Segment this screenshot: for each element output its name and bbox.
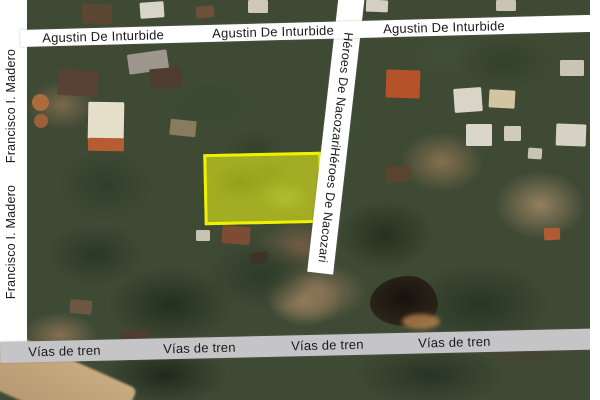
building-roof: [544, 228, 561, 241]
pond-bank: [402, 314, 440, 329]
street-label-agustin-2: Agustin De Inturbide: [212, 22, 334, 42]
building-roof: [249, 251, 268, 265]
building-roof: [496, 0, 516, 11]
building-roof: [386, 69, 421, 98]
building-roof: [366, 0, 388, 12]
street-label-madero-1: Francisco I. Madero: [1, 46, 21, 166]
building-roof: [560, 60, 584, 76]
building-roof: [69, 299, 92, 315]
street-label-vias-1: Vías de tren: [28, 340, 101, 363]
building-roof: [81, 3, 112, 25]
building-roof: [453, 87, 483, 113]
building-roof: [57, 69, 99, 98]
building-roof: [169, 119, 197, 138]
building-roof: [195, 5, 214, 19]
street-label-agustin-3: Agustin De Inturbide: [383, 17, 505, 37]
street-label-agustin-1: Agustin De Inturbide: [42, 26, 164, 46]
building-roof: [139, 1, 164, 19]
street-label-madero-2: Francisco I. Madero: [1, 182, 21, 302]
building-roof: [196, 230, 210, 241]
highlighted-parcel[interactable]: [203, 152, 322, 225]
building-roof: [556, 123, 587, 146]
building-roof: [385, 165, 411, 183]
building-roof: [88, 102, 125, 141]
map-view[interactable]: Agustin De Inturbide Agustin De Inturbid…: [0, 0, 600, 400]
building-roof: [34, 114, 48, 128]
building-roof: [32, 94, 49, 111]
building-roof: [221, 225, 250, 245]
building-roof: [489, 89, 516, 108]
street-label-vias-2: Vías de tren: [163, 337, 236, 360]
building-roof: [504, 126, 521, 141]
street-label-vias-3: Vías de tren: [291, 334, 364, 357]
building-roof: [466, 124, 492, 146]
building-roof: [149, 67, 183, 90]
page-margin: [590, 0, 600, 400]
street-label-vias-4: Vías de tren: [418, 331, 491, 354]
building-roof: [88, 138, 124, 152]
building-roof: [528, 148, 543, 160]
building-roof: [248, 0, 268, 13]
